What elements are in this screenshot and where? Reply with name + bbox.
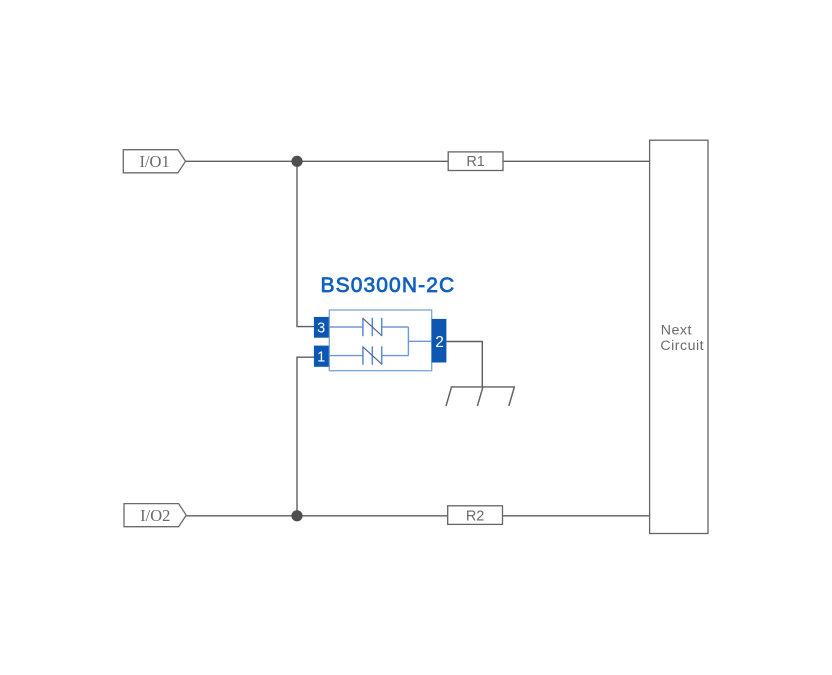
svg-text:2: 2 — [435, 334, 444, 351]
svg-text:3: 3 — [317, 321, 325, 337]
svg-text:I/O2: I/O2 — [140, 506, 170, 525]
svg-text:R1: R1 — [466, 154, 485, 170]
svg-text:I/O1: I/O1 — [139, 152, 169, 171]
svg-text:Circuit: Circuit — [660, 338, 704, 354]
svg-text:Next: Next — [661, 323, 692, 339]
svg-text:R2: R2 — [466, 508, 485, 524]
svg-text:BS0300N-2C: BS0300N-2C — [321, 274, 456, 297]
svg-text:1: 1 — [317, 350, 325, 366]
